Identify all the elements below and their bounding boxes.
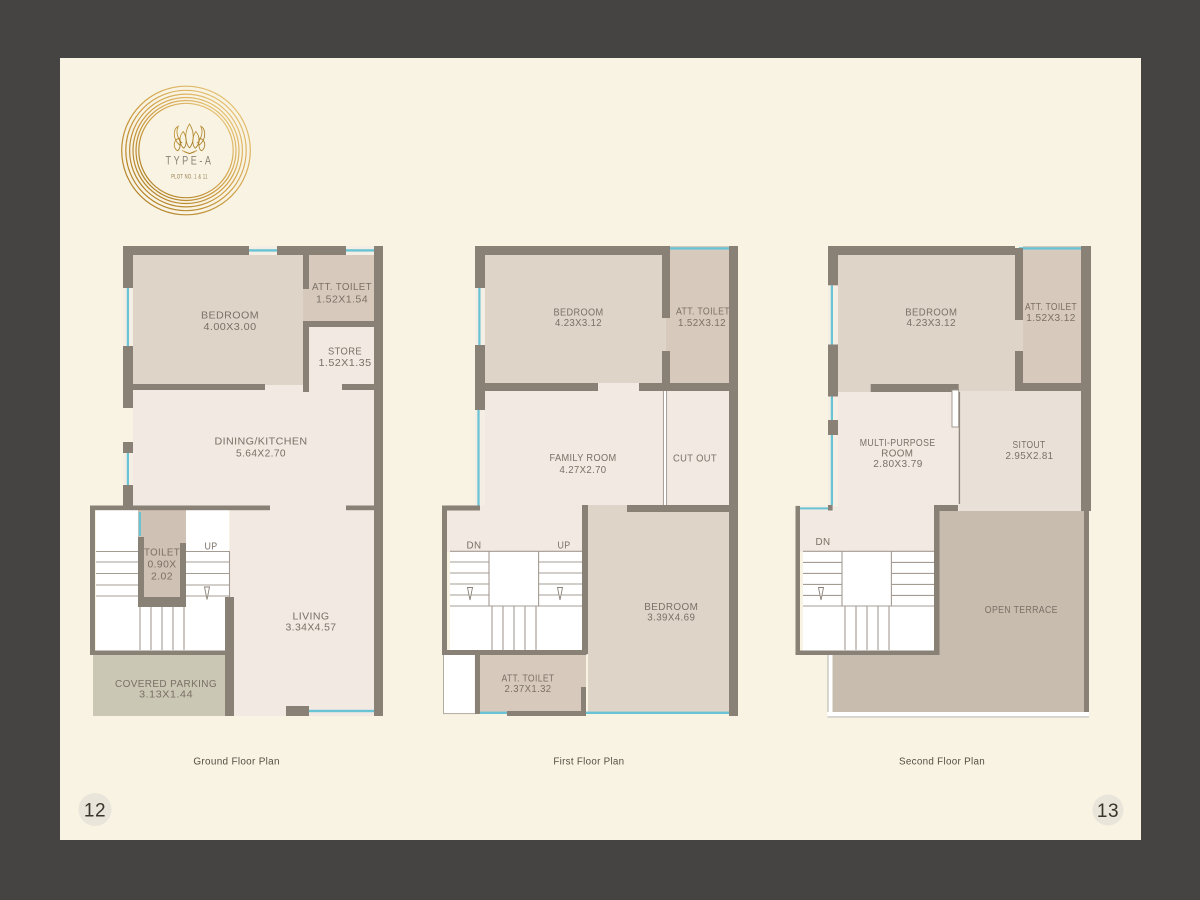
svg-text:CUT OUT: CUT OUT — [673, 453, 717, 465]
svg-text:4.23X3.12: 4.23X3.12 — [555, 318, 602, 329]
svg-text:3.34X4.57: 3.34X4.57 — [286, 622, 337, 634]
svg-text:DN: DN — [816, 537, 831, 548]
svg-text:Ground Floor Plan: Ground Floor Plan — [193, 757, 280, 768]
svg-text:1.52X3.12: 1.52X3.12 — [1026, 313, 1076, 324]
svg-text:UP: UP — [558, 541, 571, 552]
svg-text:ATT. TOILET: ATT. TOILET — [502, 674, 555, 685]
svg-text:5.64X2.70: 5.64X2.70 — [236, 447, 286, 459]
svg-text:13: 13 — [1097, 801, 1119, 822]
svg-text:4.23X3.12: 4.23X3.12 — [907, 318, 957, 329]
svg-text:DN: DN — [467, 541, 482, 552]
svg-text:BEDROOM: BEDROOM — [554, 308, 604, 319]
svg-text:2.95X2.81: 2.95X2.81 — [1006, 450, 1054, 462]
svg-text:0.90X: 0.90X — [148, 560, 177, 571]
svg-text:FAMILY ROOM: FAMILY ROOM — [550, 452, 617, 464]
svg-text:Second Floor Plan: Second Floor Plan — [899, 757, 985, 768]
svg-text:4.27X2.70: 4.27X2.70 — [560, 464, 607, 476]
svg-text:2.02: 2.02 — [151, 572, 173, 583]
svg-text:ATT. TOILET: ATT. TOILET — [676, 307, 730, 318]
svg-text:3.13X1.44: 3.13X1.44 — [139, 688, 193, 700]
svg-text:12: 12 — [84, 801, 106, 822]
svg-text:4.00X3.00: 4.00X3.00 — [204, 321, 257, 333]
svg-text:DINING/KITCHEN: DINING/KITCHEN — [215, 436, 308, 448]
svg-text:1.52X1.54: 1.52X1.54 — [316, 294, 368, 306]
svg-text:STORE: STORE — [328, 346, 362, 358]
svg-text:2.37X1.32: 2.37X1.32 — [505, 684, 552, 695]
svg-text:TOILET: TOILET — [144, 548, 180, 559]
svg-text:1.52X3.12: 1.52X3.12 — [678, 318, 726, 329]
svg-text:ATT. TOILET: ATT. TOILET — [312, 281, 372, 293]
svg-text:OPEN TERRACE: OPEN TERRACE — [985, 604, 1058, 616]
svg-text:TYPE-A: TYPE-A — [166, 156, 214, 168]
svg-text:First Floor Plan: First Floor Plan — [553, 757, 624, 768]
svg-text:PLOT NO. 1 & 11: PLOT NO. 1 & 11 — [171, 174, 208, 181]
svg-text:1.52X1.35: 1.52X1.35 — [319, 357, 372, 369]
svg-text:BEDROOM: BEDROOM — [201, 310, 259, 322]
svg-text:BEDROOM: BEDROOM — [644, 602, 698, 613]
svg-text:2.80X3.79: 2.80X3.79 — [873, 458, 923, 470]
svg-text:ATT. TOILET: ATT. TOILET — [1025, 302, 1077, 313]
svg-text:3.39X4.69: 3.39X4.69 — [647, 612, 695, 623]
svg-text:UP: UP — [205, 542, 218, 553]
